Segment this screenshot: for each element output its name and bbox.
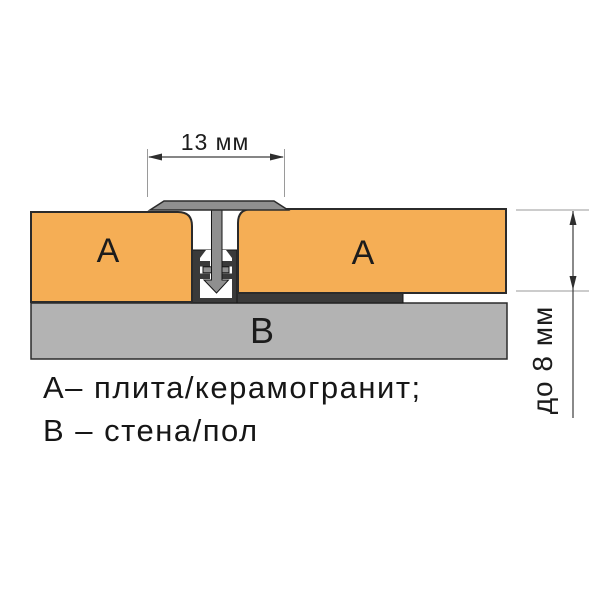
profile-cap [150,201,288,210]
dim-top-label: 13 мм [181,129,250,155]
legend-line-b: B – стена/пол [43,413,259,448]
tile-left-label: A [97,232,120,270]
profile-base-flange [228,293,403,303]
channel-tooth-left-1 [200,261,210,267]
channel-tooth-left-2 [200,274,210,280]
profile-cross-section-diagram: 13 мм до 8 мм A A B A– плита/керамограни… [0,0,600,600]
channel-tooth-right-1 [222,261,232,267]
dim-right-label: до 8 мм [527,306,558,415]
substrate-label: B [250,310,274,351]
tile-right-label: A [352,234,375,272]
channel-tooth-right-2 [222,274,232,280]
legend-line-a: A– плита/керамогранит; [43,370,422,405]
